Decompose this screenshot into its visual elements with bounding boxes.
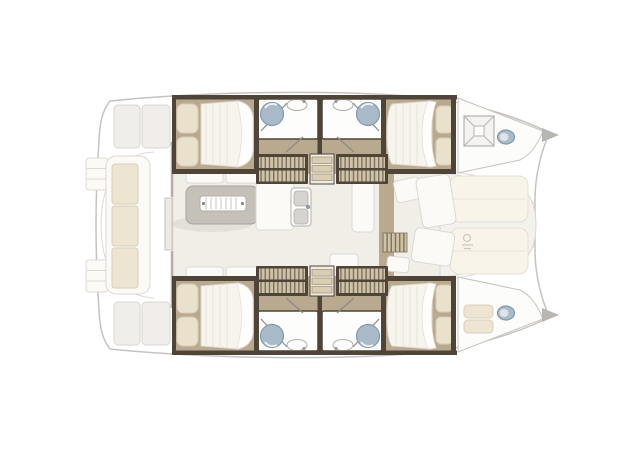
faucet-icon	[306, 205, 310, 209]
bench-cushion	[112, 164, 138, 204]
sliding-door	[165, 198, 172, 250]
sink-basin	[294, 209, 308, 224]
aft-deck-hatch	[114, 302, 140, 345]
forward-unit	[386, 256, 409, 273]
aft-deck-hatch	[142, 105, 170, 148]
transom-steps	[86, 260, 108, 292]
galley-counter	[256, 182, 294, 230]
forward-seat	[411, 227, 456, 267]
forepeak-hatch	[464, 116, 494, 146]
galley-cabinet	[352, 182, 374, 232]
bench-cushion	[112, 206, 138, 246]
bench-cushion	[112, 248, 138, 288]
transom-steps	[86, 158, 108, 190]
berth-cushion	[464, 320, 493, 333]
boat-plan-svg	[0, 0, 630, 450]
floor-grating	[383, 233, 407, 252]
dinette-table	[186, 186, 258, 224]
aft-deck-hatch	[114, 105, 140, 148]
port-bow-tip	[542, 128, 559, 142]
sink-basin	[294, 191, 308, 206]
forward-seat	[415, 174, 456, 229]
floor-plan	[0, 0, 630, 450]
berth-cushion	[464, 305, 493, 318]
aft-deck-hatch	[142, 302, 170, 345]
starboard-bow-tip	[542, 308, 559, 322]
